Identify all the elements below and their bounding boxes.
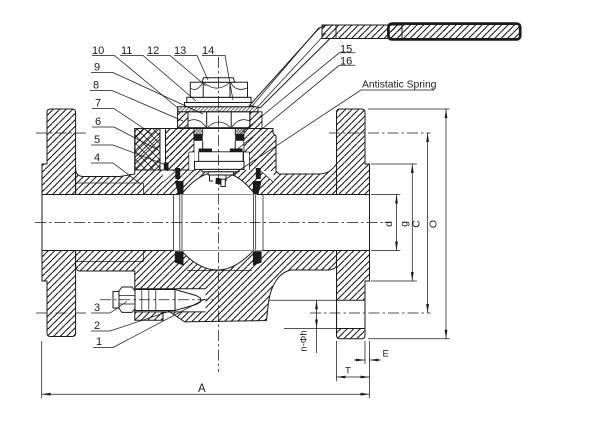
svg-text:6: 6 (95, 116, 101, 128)
svg-text:A: A (198, 383, 206, 395)
svg-text:d: d (383, 221, 395, 227)
svg-text:9: 9 (94, 62, 100, 74)
svg-text:2: 2 (94, 320, 100, 332)
svg-text:1: 1 (96, 336, 102, 348)
svg-text:Antistatic Spring: Antistatic Spring (362, 80, 437, 91)
svg-text:T: T (345, 366, 351, 377)
svg-text:7: 7 (95, 98, 101, 110)
svg-text:E: E (383, 349, 389, 360)
svg-text:O: O (428, 220, 440, 228)
svg-text:8: 8 (93, 80, 99, 92)
svg-text:15: 15 (340, 44, 352, 56)
svg-text:3: 3 (94, 302, 100, 314)
svg-text:5: 5 (94, 134, 100, 146)
svg-text:16: 16 (340, 56, 352, 68)
svg-text:n-Φh: n-Φh (299, 330, 310, 351)
svg-text:4: 4 (94, 152, 100, 164)
svg-text:g: g (399, 221, 411, 227)
